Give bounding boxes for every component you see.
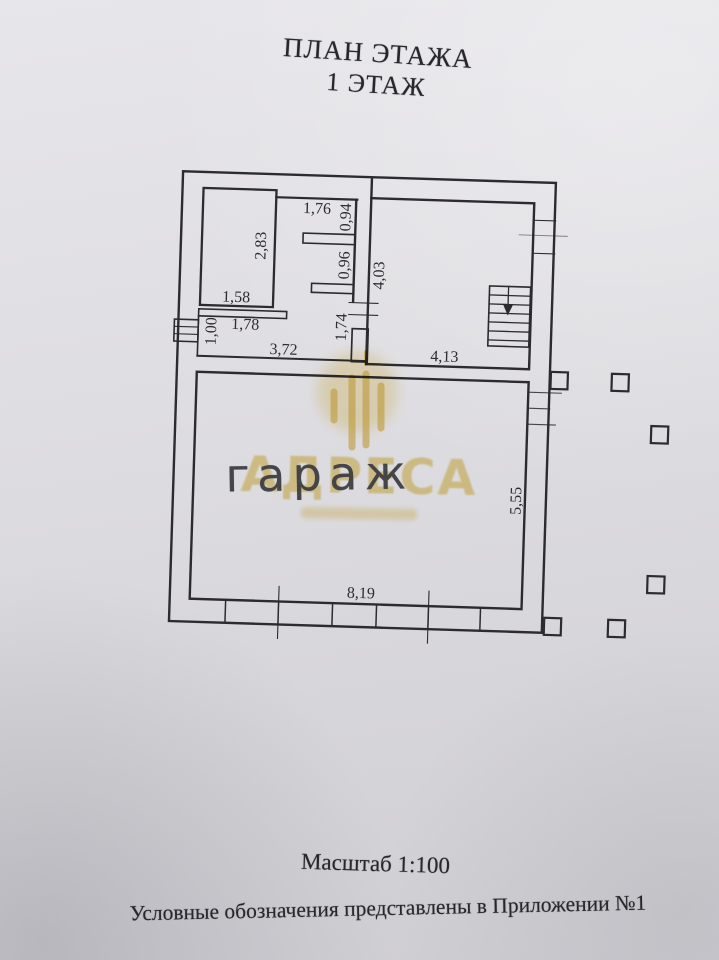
column-square [647, 576, 665, 594]
wall-tick-line [533, 253, 555, 254]
wall-division-line [225, 600, 226, 623]
closet-partition-stub [303, 233, 355, 245]
right-wall-ticks-upper [519, 220, 568, 254]
stair-tread-line [488, 340, 529, 341]
closet-top-wall [276, 197, 357, 200]
window-pane-line [174, 334, 198, 335]
closet-partition-stub [311, 283, 353, 293]
column-square [550, 372, 568, 390]
dimension-label-096: 0,96 [336, 251, 354, 280]
right-wall-ticks-lower [527, 392, 561, 425]
dimension-label-372: 3,72 [269, 341, 298, 359]
column-squares [543, 372, 671, 639]
dimension-label-413: 4,13 [430, 348, 459, 366]
column-square [651, 426, 669, 444]
room-label-garage: гараж [212, 445, 428, 503]
wall-tick-line [528, 408, 550, 409]
plan-geometry: 1,76 0,94 0,96 1,74 2,83 1,58 1,00 1,78 … [165, 171, 677, 650]
room-topright-left-wall-extension [371, 178, 372, 198]
wall-tick-line [527, 424, 555, 425]
room-topright-wall [366, 198, 534, 369]
dimension-label-283: 2,83 [252, 231, 270, 260]
dimension-labels: 1,76 0,94 0,96 1,74 2,83 1,58 1,00 1,78 … [195, 197, 534, 607]
column-square [608, 620, 626, 638]
wall-division-line [376, 605, 377, 628]
wall-division-line [480, 608, 481, 631]
wall-tick-line [534, 220, 556, 221]
dimension-label-174: 1,74 [333, 313, 351, 342]
wall-tick-line [528, 392, 561, 393]
dimension-label-158: 1,58 [222, 289, 251, 307]
stair-tread-line [488, 331, 529, 332]
wall-tick-line [519, 235, 567, 237]
outer-wall [169, 171, 556, 632]
staircase [488, 286, 531, 347]
window-pane-line [174, 326, 198, 327]
stair-direction-line [508, 287, 509, 307]
column-square [611, 374, 629, 392]
stair-tread-line [489, 322, 530, 323]
dimension-label-094: 0,94 [337, 203, 355, 232]
stair-tread-line [489, 313, 530, 314]
dimension-label-100: 1,00 [203, 317, 221, 346]
wall-division-line [332, 603, 333, 626]
dimension-label-403: 4,03 [370, 261, 388, 290]
dimension-label-178: 1,78 [231, 316, 260, 334]
door-opening-line [349, 315, 378, 316]
column-square [544, 618, 562, 636]
dimension-label-176: 1,76 [303, 200, 332, 218]
dimension-label-555: 5,55 [507, 487, 525, 516]
stair-tread-line [489, 295, 530, 296]
door-opening-line [349, 303, 378, 304]
dimension-label-819: 8,19 [347, 585, 376, 603]
scanned-floor-plan-photo: ПЛАН ЭТАЖА 1 ЭТАЖ [0, 0, 719, 960]
